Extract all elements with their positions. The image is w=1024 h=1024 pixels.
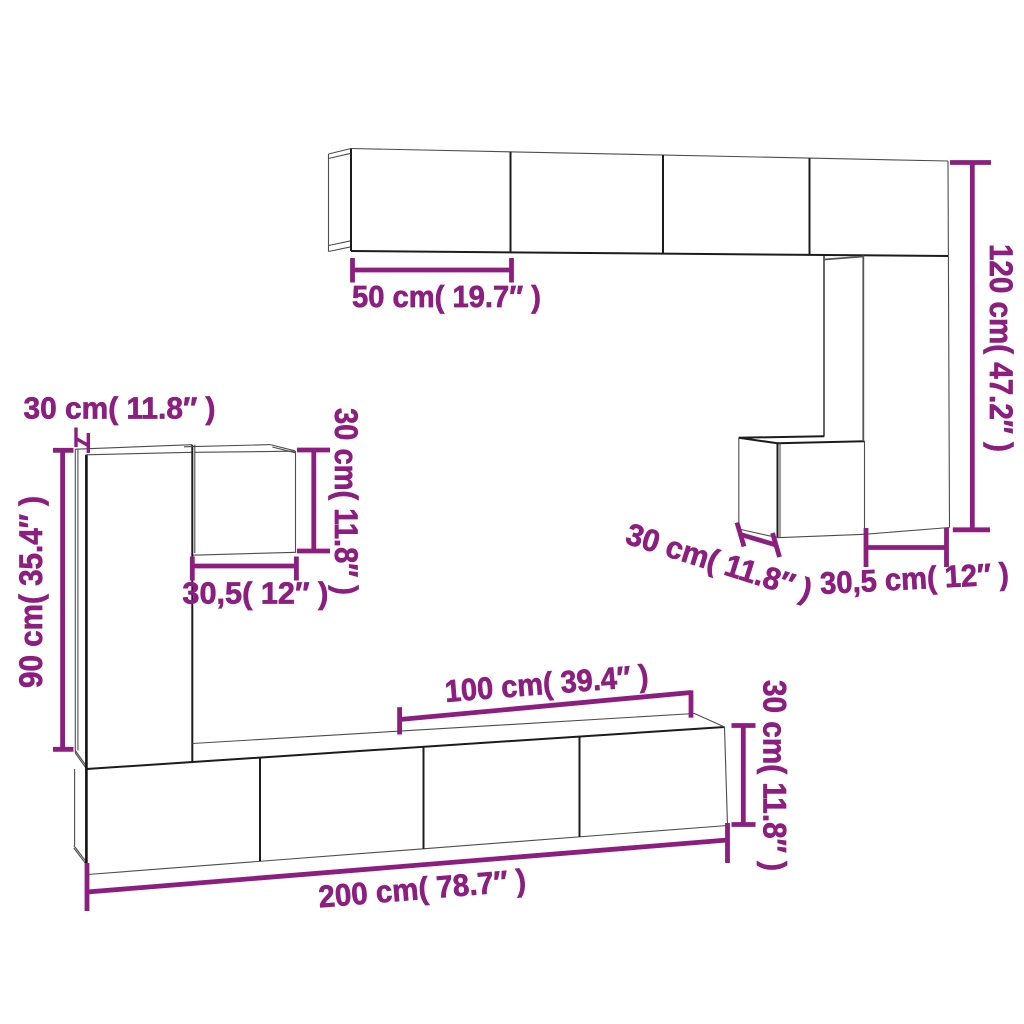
svg-text:90 cm( 35.4″ ): 90 cm( 35.4″ )	[13, 496, 49, 688]
svg-text:30 cm( 11.8″ ): 30 cm( 11.8″ )	[24, 391, 216, 426]
svg-text:30 cm( 11.8″ ): 30 cm( 11.8″ )	[757, 680, 793, 871]
svg-text:50 cm( 19.7″ ): 50 cm( 19.7″ )	[352, 279, 541, 314]
svg-text:30,5( 12″ ): 30,5( 12″ )	[182, 576, 328, 611]
svg-text:30 cm( 11.8″ ): 30 cm( 11.8″ )	[328, 408, 364, 595]
svg-text:120 cm( 47.2″ ): 120 cm( 47.2″ )	[983, 244, 1019, 452]
